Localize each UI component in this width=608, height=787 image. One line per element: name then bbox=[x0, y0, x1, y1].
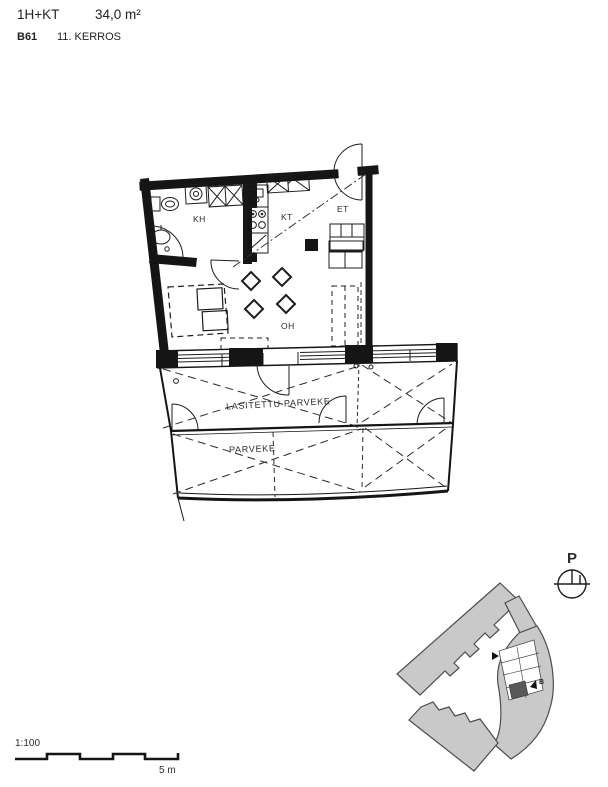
scale-bar-line bbox=[15, 753, 178, 759]
chair-icon bbox=[245, 300, 263, 318]
toilet-bowl-icon bbox=[162, 198, 179, 211]
window-band bbox=[156, 343, 457, 395]
room-label-kh: KH bbox=[193, 214, 206, 224]
site-plan: B P bbox=[397, 550, 590, 771]
bathroom-cabinet-icon bbox=[208, 185, 243, 207]
apartment-plan: LASITETTU PARVEKE PARVEKE bbox=[144, 144, 457, 521]
glazing-diagonals bbox=[163, 363, 452, 428]
room-label-et: ET bbox=[337, 204, 349, 214]
chair-icon bbox=[273, 268, 291, 286]
site-building-south bbox=[409, 702, 498, 771]
stairwell-label: B bbox=[539, 679, 544, 686]
glazed-balcony-label: LASITETTU PARVEKE bbox=[226, 396, 331, 411]
chair-icon bbox=[277, 295, 295, 313]
armchair-icon bbox=[197, 288, 223, 310]
glazed-balcony: LASITETTU PARVEKE bbox=[160, 361, 457, 435]
floor-drain-icon bbox=[165, 247, 169, 251]
north-compass-icon bbox=[554, 570, 590, 598]
room-label-oh: OH bbox=[281, 321, 295, 331]
open-balcony: PARVEKE bbox=[171, 424, 453, 521]
room-label-kt: KT bbox=[281, 212, 293, 222]
hall-fixtures bbox=[329, 224, 364, 268]
open-balcony-label: PARVEKE bbox=[229, 443, 276, 455]
scale-length: 5 m bbox=[159, 765, 176, 776]
scale-bar: 1:100 5 m bbox=[15, 738, 178, 776]
balcony-diagonals bbox=[173, 427, 448, 497]
north-label: P bbox=[567, 550, 577, 567]
bathroom-door-icon bbox=[211, 260, 239, 289]
footstool-icon bbox=[202, 311, 228, 331]
living-room-furniture bbox=[168, 268, 358, 351]
balcony-door-icon bbox=[257, 365, 289, 395]
kitchen-fixtures bbox=[246, 173, 309, 253]
drawing-canvas: LASITETTU PARVEKE PARVEKE bbox=[0, 0, 608, 787]
floor-plan-sheet: 1H+KT 34,0 m² B61 11. KERROS bbox=[0, 0, 608, 787]
entry-arrow-icon bbox=[492, 652, 499, 660]
chair-icon bbox=[242, 272, 260, 290]
scale-ratio: 1:100 bbox=[15, 738, 40, 749]
